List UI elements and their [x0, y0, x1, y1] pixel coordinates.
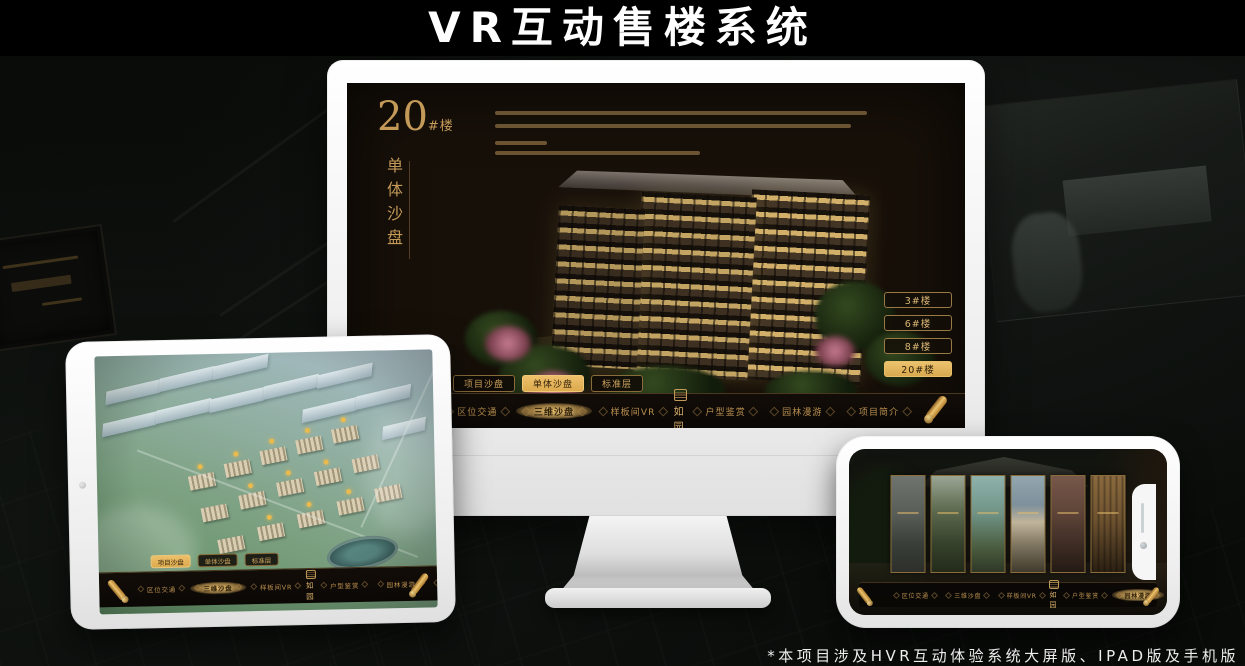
brand-logo: 如园 — [306, 570, 317, 602]
gallery-panel[interactable] — [891, 475, 926, 573]
tablet-frame: 项目沙盘 单体沙盘 标准层 区位交通 三维沙盘 样板间VR 如园 户型鉴赏 园林… — [65, 334, 456, 630]
block-vertical-label: 单体沙盘 — [381, 157, 405, 253]
phone-navbar: 区位交通 三维沙盘 样板间VR 如园 户型鉴赏 园林漫游 项目简介 — [859, 582, 1157, 607]
description-text-line — [495, 151, 700, 155]
nav-items: 区位交通 三维沙盘 样板间VR 如园 户型鉴赏 园林漫游 项目简介 — [133, 566, 438, 605]
gallery-panel[interactable] — [971, 475, 1006, 573]
brand-seal-icon — [1049, 580, 1059, 589]
phone-notch — [1132, 484, 1156, 580]
building-selector: 3#楼 6#楼 8#楼 20#楼 — [884, 292, 952, 377]
gallery-panel[interactable] — [1051, 475, 1086, 573]
headline-divider — [409, 161, 410, 259]
building-button-20[interactable]: 20#楼 — [884, 361, 952, 377]
brand-logo-text: 如园 — [306, 580, 317, 602]
page-title: VR互动售楼系统 — [0, 2, 1245, 54]
tablet-camera-icon — [79, 482, 86, 489]
building-facade — [551, 205, 645, 369]
blossom-blob — [815, 336, 855, 366]
gallery-panel[interactable] — [931, 475, 966, 573]
tablet-screen: 项目沙盘 单体沙盘 标准层 区位交通 三维沙盘 样板间VR 如园 户型鉴赏 园林… — [94, 349, 437, 614]
nav-item-unit-gallery[interactable]: 户型鉴赏 — [1059, 589, 1111, 600]
building-facade — [632, 192, 756, 381]
nav-item-garden-roam[interactable]: 园林漫游 — [764, 403, 841, 420]
tablet-view-tabs: 项目沙盘 单体沙盘 标准层 — [151, 553, 279, 569]
nav-item-project-intro[interactable]: 项目简介 — [1164, 589, 1167, 600]
nav-item-showroom-vr[interactable]: 样板间VR — [994, 589, 1049, 600]
blossom-blob — [485, 326, 531, 361]
building-button-8[interactable]: 8#楼 — [884, 338, 952, 354]
nav-item-showroom-vr[interactable]: 样板间VR — [592, 403, 673, 420]
brand-logo-text: 如园 — [674, 403, 688, 428]
block-suffix: #楼 — [428, 119, 454, 134]
monitor-stand-base — [545, 588, 771, 608]
footnote-text: *本项目涉及HVR互动体验系统大屏版、IPAD版及手机版 — [767, 645, 1239, 666]
poster-stage: VR互动售楼系统 20#楼 单体沙盘 — [0, 0, 1245, 666]
block-number: 20 — [377, 94, 428, 140]
nav-item-3d-sandbox[interactable]: 三维沙盘 — [941, 589, 993, 600]
nav-item-showroom-vr[interactable]: 样板间VR — [246, 580, 306, 594]
nav-item-unit-gallery[interactable]: 户型鉴赏 — [687, 403, 764, 420]
gallery-panel[interactable] — [1011, 475, 1046, 573]
description-text-line — [495, 124, 851, 128]
description-text-line — [495, 111, 867, 115]
nav-item-project-intro[interactable]: 项目简介 — [841, 403, 918, 420]
nav-items: 区位交通 三维沙盘 样板间VR 如园 户型鉴赏 园林漫游 项目简介 — [889, 580, 1167, 609]
bg-award-plaque — [0, 224, 117, 352]
scroll-menu-icon[interactable] — [924, 394, 948, 422]
nav-items: 区位交通 三维沙盘 样板间VR 如园 户型鉴赏 园林漫游 项目简介 — [439, 389, 917, 428]
phone-screen: 区位交通 三维沙盘 样板间VR 如园 户型鉴赏 园林漫游 项目简介 — [849, 449, 1167, 615]
tab-project-sandbox[interactable]: 项目沙盘 — [151, 554, 191, 568]
nav-item-location-traffic[interactable]: 区位交通 — [889, 589, 941, 600]
nav-item-project-intro[interactable]: 项目简介 — [429, 576, 437, 590]
building-button-3[interactable]: 3#楼 — [884, 292, 952, 308]
monitor-stand — [560, 516, 756, 592]
tab-single-sandbox[interactable]: 单体沙盘 — [198, 553, 238, 567]
phone-frame: 区位交通 三维沙盘 样板间VR 如园 户型鉴赏 园林漫游 项目简介 — [836, 436, 1180, 628]
brand-seal-icon — [674, 389, 688, 401]
building-button-6[interactable]: 6#楼 — [884, 315, 952, 331]
nav-item-location-traffic[interactable]: 区位交通 — [133, 582, 190, 596]
nav-item-unit-gallery[interactable]: 户型鉴赏 — [316, 578, 373, 592]
nav-item-3d-sandbox[interactable]: 三维沙盘 — [516, 403, 593, 420]
panorama-gallery — [891, 475, 1126, 573]
tablet-navbar: 区位交通 三维沙盘 样板间VR 如园 户型鉴赏 园林漫游 项目简介 — [99, 565, 438, 607]
block-headline: 20#楼 — [377, 97, 454, 137]
brand-logo: 如园 — [674, 389, 688, 428]
brand-seal-icon — [306, 570, 317, 579]
bg-photo-right — [974, 79, 1245, 322]
tab-standard-floor[interactable]: 标准层 — [244, 553, 278, 567]
phone-camera-icon — [1140, 542, 1147, 549]
brand-logo: 如园 — [1049, 580, 1059, 609]
bg-photo-building — [1062, 165, 1211, 236]
gallery-panel[interactable] — [1091, 475, 1126, 573]
phone-speaker-icon — [1141, 503, 1144, 533]
nav-item-3d-sandbox[interactable]: 三维沙盘 — [190, 581, 247, 595]
description-text-line — [495, 141, 547, 145]
brand-logo-text: 如园 — [1049, 590, 1059, 610]
